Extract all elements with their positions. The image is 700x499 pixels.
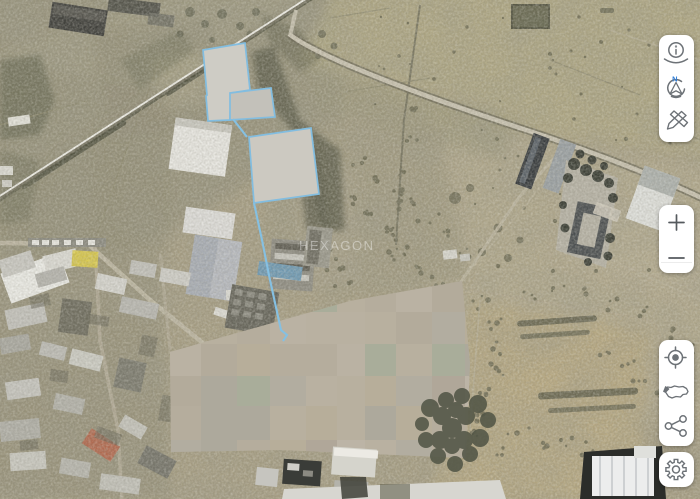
- svg-text:N: N: [672, 75, 677, 84]
